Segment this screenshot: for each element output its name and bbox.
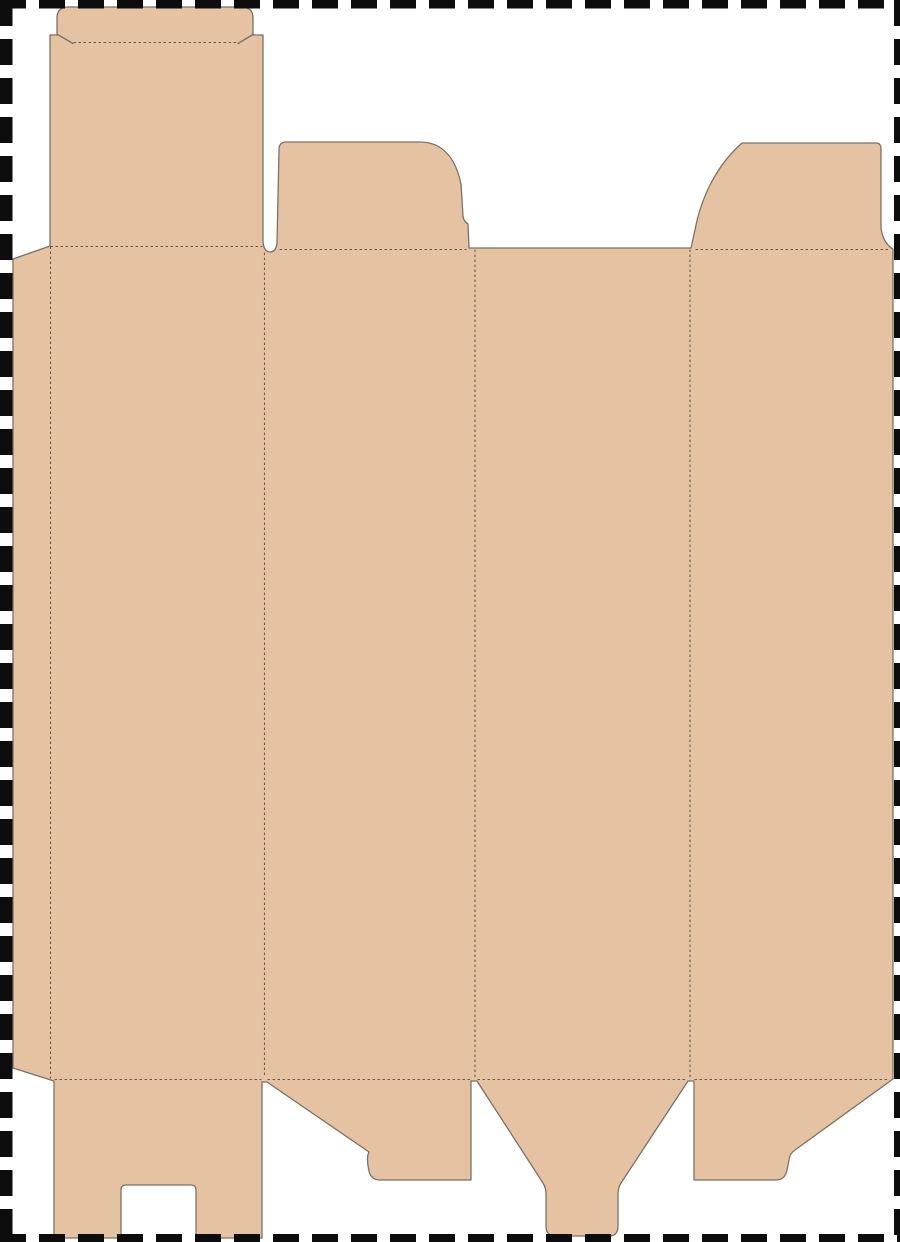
dieline-artboard [0, 0, 900, 1242]
box-dieline-template [0, 0, 900, 1242]
carton-blank-outline [13, 7, 893, 1238]
